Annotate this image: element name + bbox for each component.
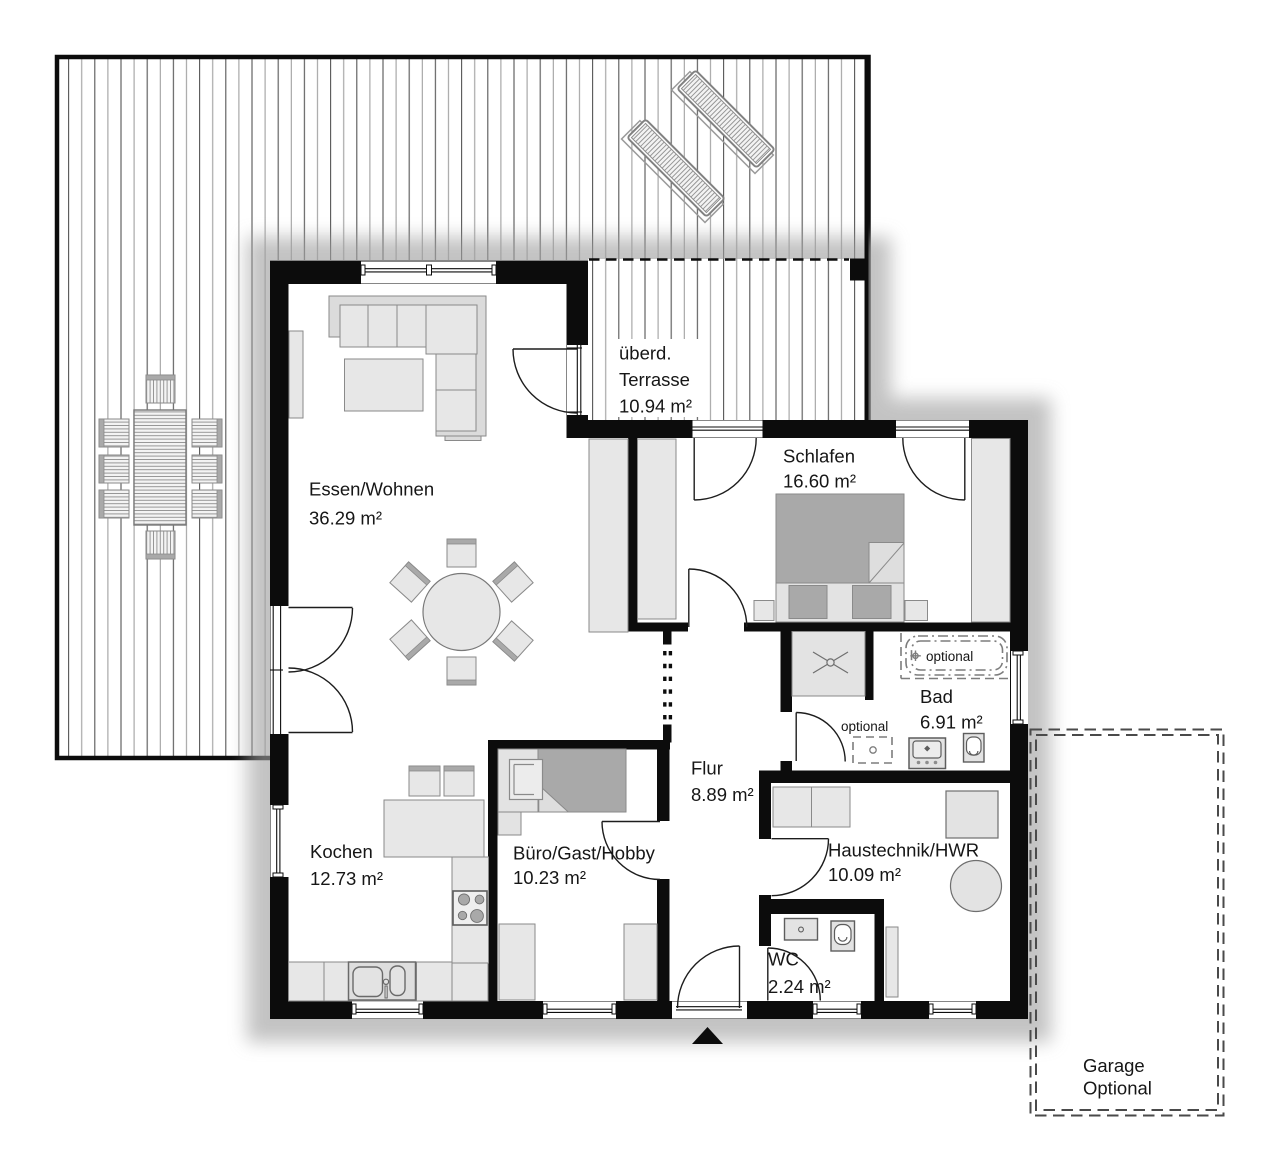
svg-text:8.89 m²: 8.89 m²	[691, 784, 754, 805]
svg-text:optional: optional	[926, 649, 973, 664]
svg-text:Optional: Optional	[1083, 1078, 1152, 1099]
svg-text:Büro/Gast/Hobby: Büro/Gast/Hobby	[513, 843, 656, 864]
svg-text:Garage: Garage	[1083, 1055, 1145, 1076]
svg-text:Bad: Bad	[920, 686, 953, 707]
svg-text:10.94 m²: 10.94 m²	[619, 396, 692, 417]
svg-text:10.09 m²: 10.09 m²	[828, 864, 901, 885]
svg-text:2.24 m²: 2.24 m²	[768, 976, 831, 997]
svg-text:Kochen: Kochen	[310, 841, 373, 862]
svg-text:10.23 m²: 10.23 m²	[513, 867, 586, 888]
svg-text:Terrasse: Terrasse	[619, 369, 690, 390]
svg-text:12.73 m²: 12.73 m²	[310, 868, 383, 889]
svg-text:Schlafen: Schlafen	[783, 446, 855, 467]
svg-text:Essen/Wohnen: Essen/Wohnen	[309, 479, 434, 500]
svg-text:16.60 m²: 16.60 m²	[783, 471, 856, 492]
svg-text:Haustechnik/HWR: Haustechnik/HWR	[828, 840, 979, 861]
svg-text:optional: optional	[841, 719, 888, 734]
svg-text:Flur: Flur	[691, 758, 723, 779]
svg-text:überd.: überd.	[619, 343, 671, 364]
svg-text:36.29 m²: 36.29 m²	[309, 508, 382, 529]
svg-text:6.91 m²: 6.91 m²	[920, 712, 983, 733]
svg-text:WC: WC	[768, 949, 799, 970]
